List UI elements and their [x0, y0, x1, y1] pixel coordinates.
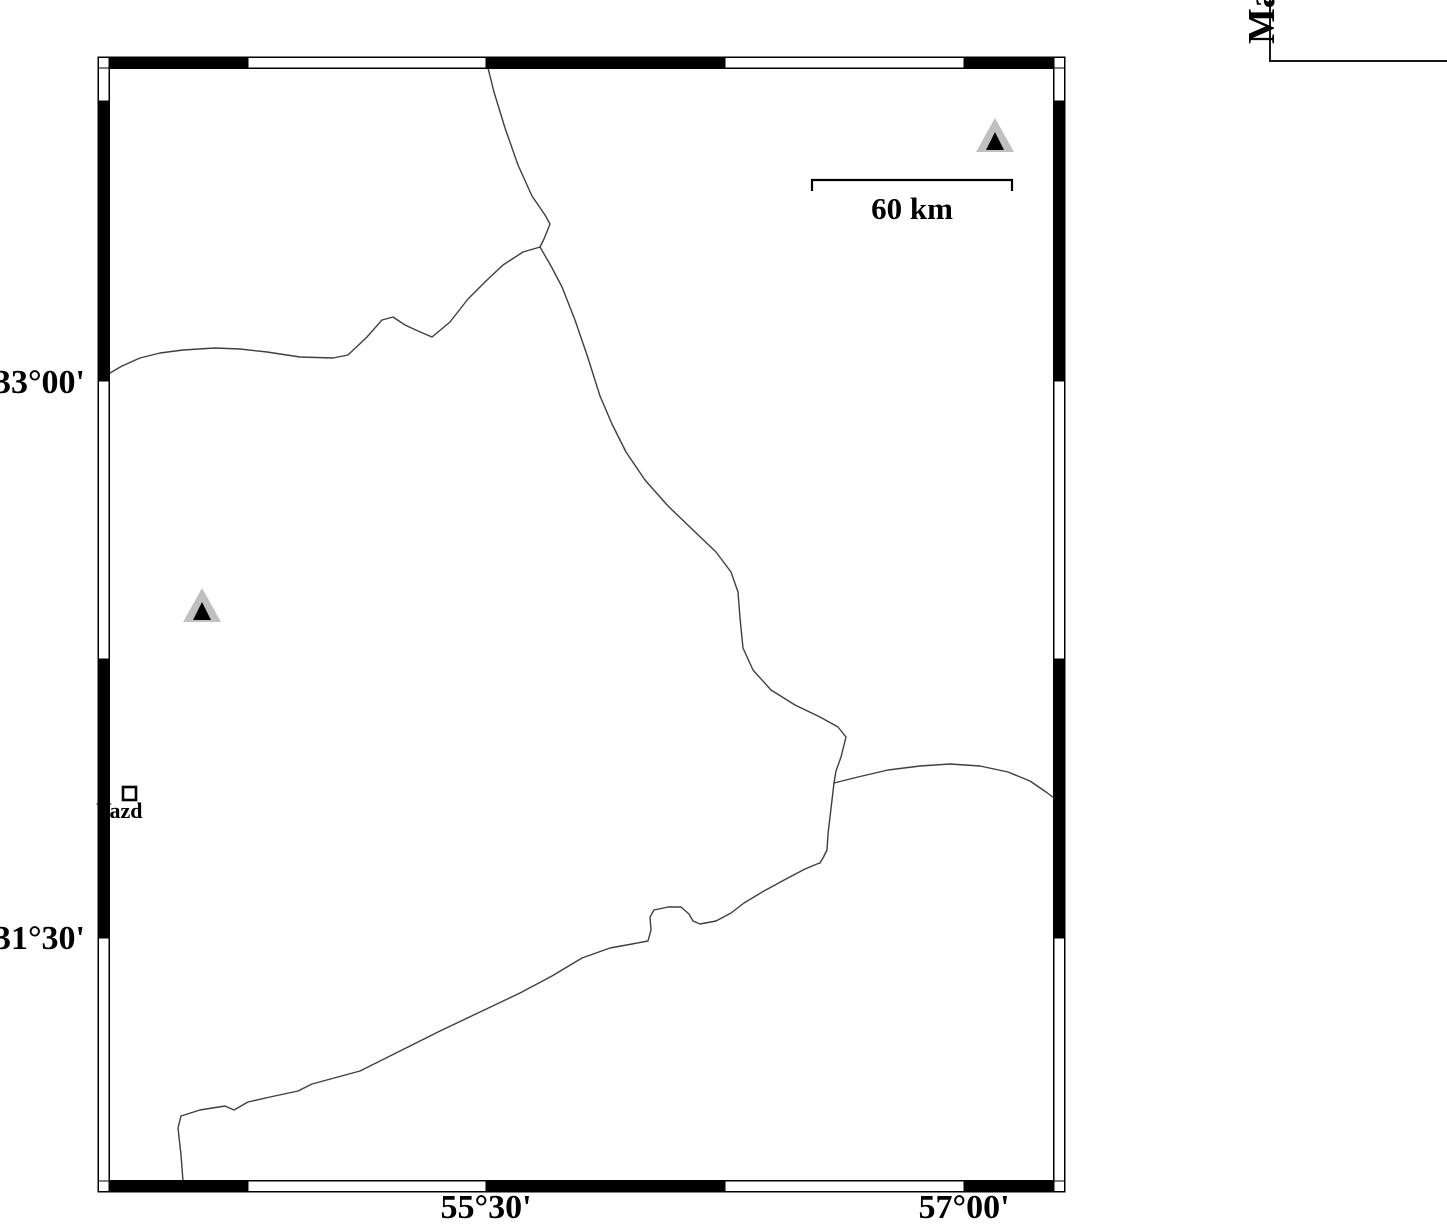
lat-label-31-30: 31°30'	[0, 922, 85, 956]
frame-bottom-segment	[109, 1181, 248, 1192]
frame-right-segment	[1054, 381, 1065, 659]
frame-right-segment	[1054, 101, 1065, 381]
frame-top-segment	[486, 57, 725, 68]
frame-corner	[1054, 1181, 1065, 1192]
frame-right-segment	[1054, 659, 1065, 938]
lat-label-33-00: 33°00'	[0, 366, 85, 400]
frame-top-segment	[109, 57, 248, 68]
boundary-line-south-branch	[820, 783, 834, 863]
scale-bar-label: 60 km	[871, 193, 953, 224]
frame-right-segment	[1054, 938, 1065, 1181]
lon-label-55-30: 55°30'	[440, 1191, 531, 1225]
legend-title: Ma	[1243, 0, 1281, 44]
frame-outer-outline	[99, 58, 1065, 1192]
frame-left-segment	[98, 68, 109, 101]
frame-left-segment	[98, 381, 109, 659]
frame-left-segment	[98, 938, 109, 1181]
boundary-line-east	[834, 764, 1054, 798]
map-page: 33°00' 31°30' 55°30' 57°00' 60 km Yazd M…	[0, 0, 1447, 1229]
legend-box: Ma	[1269, 0, 1447, 62]
frame-top-segment	[248, 57, 486, 68]
frame-right-segment	[1054, 68, 1065, 101]
frame-top-segment	[964, 57, 1054, 68]
frame-top-segment	[725, 57, 964, 68]
boundary-line-southwest	[178, 863, 820, 1181]
frame-corner	[98, 57, 109, 68]
frame-inner-outline	[110, 69, 1054, 1181]
boundary-line-west	[110, 247, 540, 373]
frame-corner	[98, 1181, 109, 1192]
city-label-yazd: Yazd	[96, 800, 142, 822]
boundary-line-southeast	[540, 247, 846, 783]
frame-corner	[1054, 57, 1065, 68]
scale-bar	[812, 180, 1012, 191]
boundary-line-north	[488, 68, 550, 247]
map-canvas	[0, 0, 1447, 1229]
frame-left-segment	[98, 101, 109, 381]
lon-label-57-00: 57°00'	[918, 1191, 1009, 1225]
